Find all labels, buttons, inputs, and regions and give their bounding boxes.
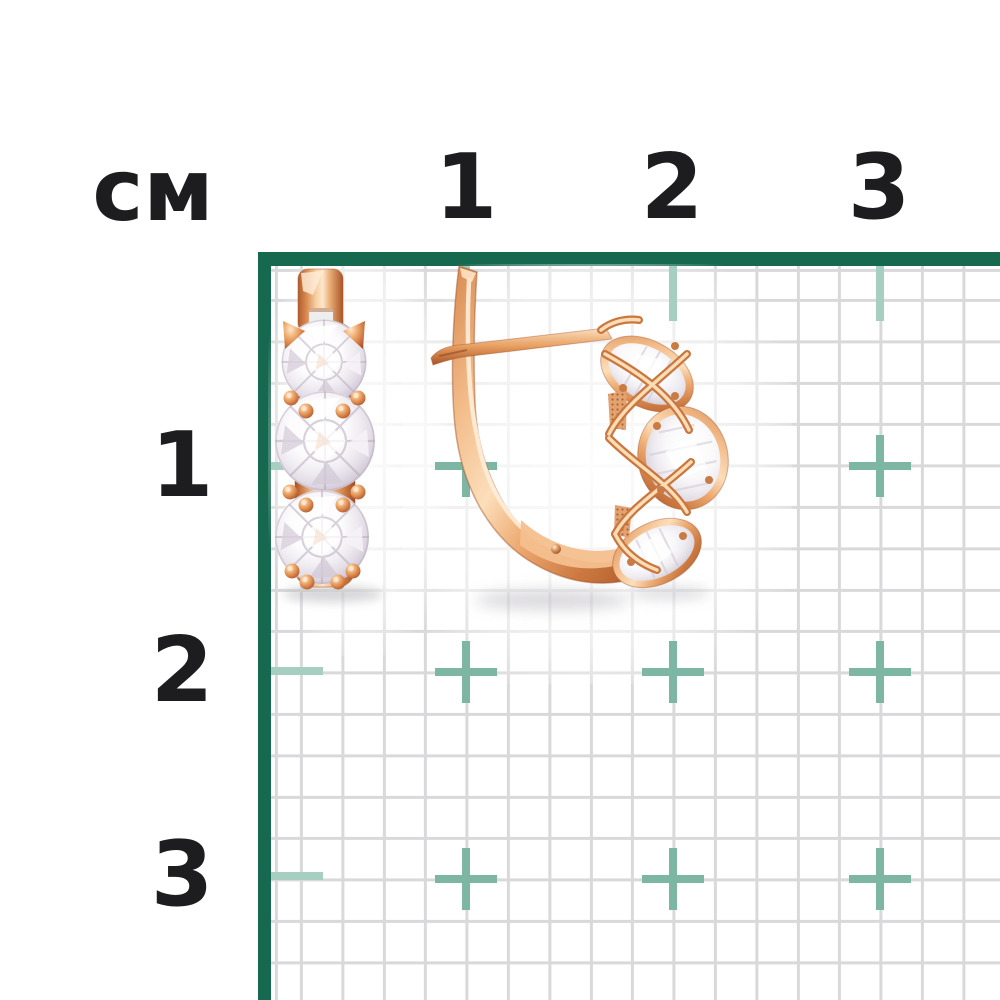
stone bbox=[275, 391, 375, 491]
left-ruler-label-1: 1 bbox=[132, 421, 232, 511]
cm-cross-icon bbox=[849, 641, 911, 703]
cm-edge-tick-icon bbox=[876, 266, 884, 321]
top-ruler-label-3: 3 bbox=[829, 143, 929, 233]
cm-cross-icon bbox=[435, 848, 497, 910]
earring-side-view bbox=[425, 262, 735, 612]
cm-cross-icon bbox=[642, 641, 704, 703]
product-size-chart: см 1 2 3 1 2 3 bbox=[0, 0, 1000, 1000]
cm-unit-label: см bbox=[78, 148, 228, 234]
left-ruler-label-2: 2 bbox=[132, 626, 232, 716]
cm-cross-icon bbox=[849, 435, 911, 497]
cm-edge-tick-icon bbox=[271, 667, 323, 675]
earring-front-view bbox=[265, 265, 385, 605]
rivet bbox=[551, 544, 561, 554]
top-ruler-label-2: 2 bbox=[622, 143, 722, 233]
top-ruler-label-1: 1 bbox=[416, 143, 516, 233]
left-ruler-label-3: 3 bbox=[132, 830, 232, 920]
cm-cross-icon bbox=[849, 848, 911, 910]
cm-cross-icon bbox=[435, 641, 497, 703]
cm-cross-icon bbox=[642, 848, 704, 910]
cm-edge-tick-icon bbox=[271, 872, 323, 880]
